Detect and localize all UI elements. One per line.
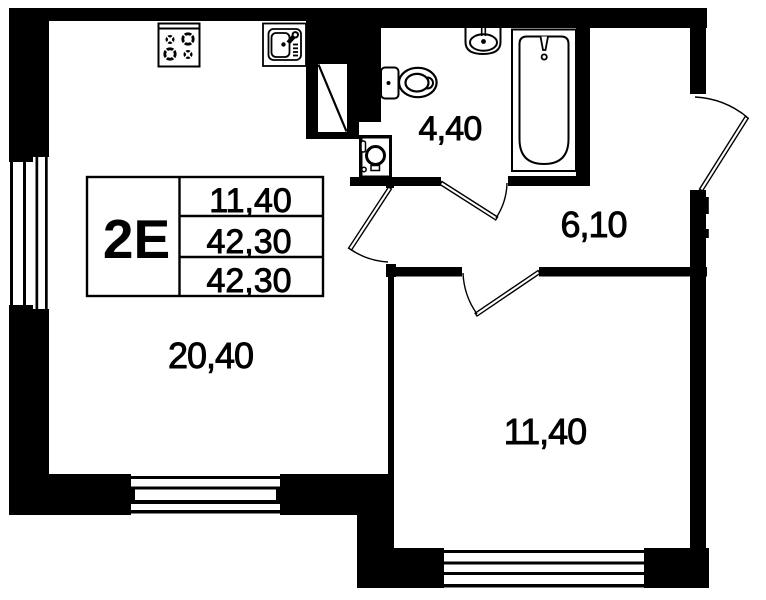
svg-text:11,40: 11,40 — [209, 182, 292, 220]
svg-text:11,40: 11,40 — [504, 411, 586, 452]
svg-text:2E: 2E — [103, 208, 170, 270]
svg-text:20,40: 20,40 — [168, 335, 253, 376]
svg-text:42,30: 42,30 — [206, 262, 291, 300]
svg-text:6,10: 6,10 — [560, 204, 626, 245]
svg-text:4,40: 4,40 — [419, 110, 482, 148]
svg-text:42,30: 42,30 — [206, 223, 291, 261]
